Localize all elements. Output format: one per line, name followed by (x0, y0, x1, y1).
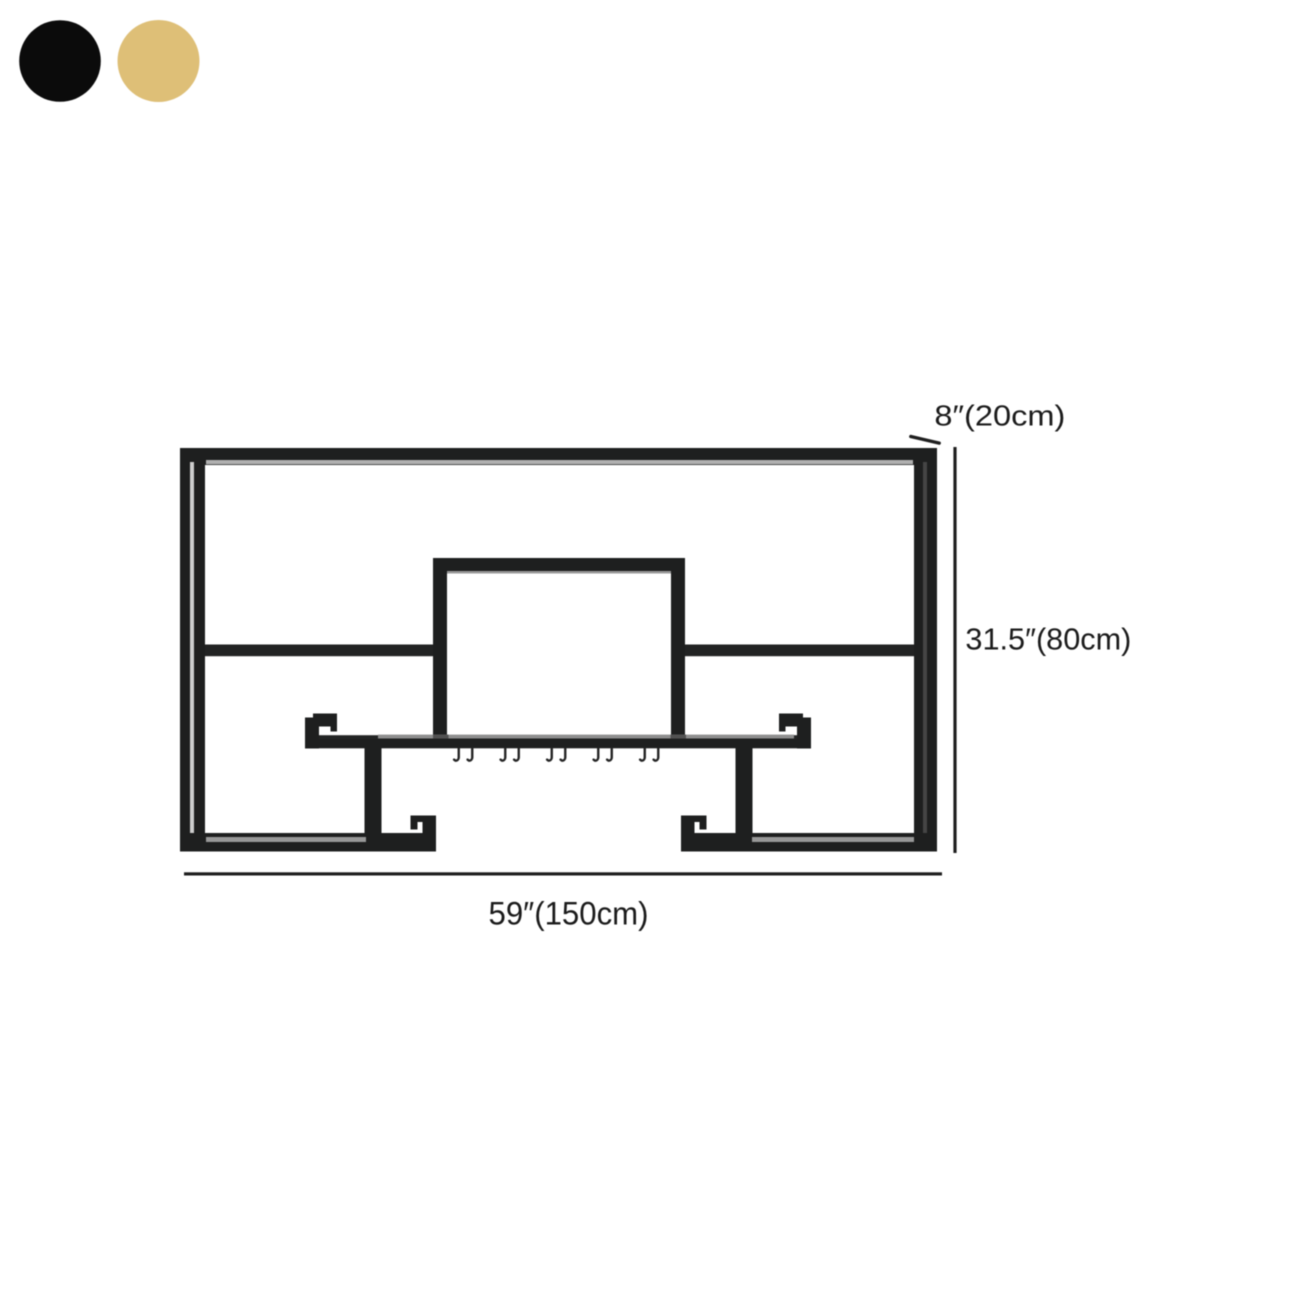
svg-text:59″(150cm): 59″(150cm) (489, 896, 649, 932)
svg-text:31.5″(80cm): 31.5″(80cm) (965, 622, 1131, 657)
svg-text:8″(20cm): 8″(20cm) (934, 400, 1065, 432)
